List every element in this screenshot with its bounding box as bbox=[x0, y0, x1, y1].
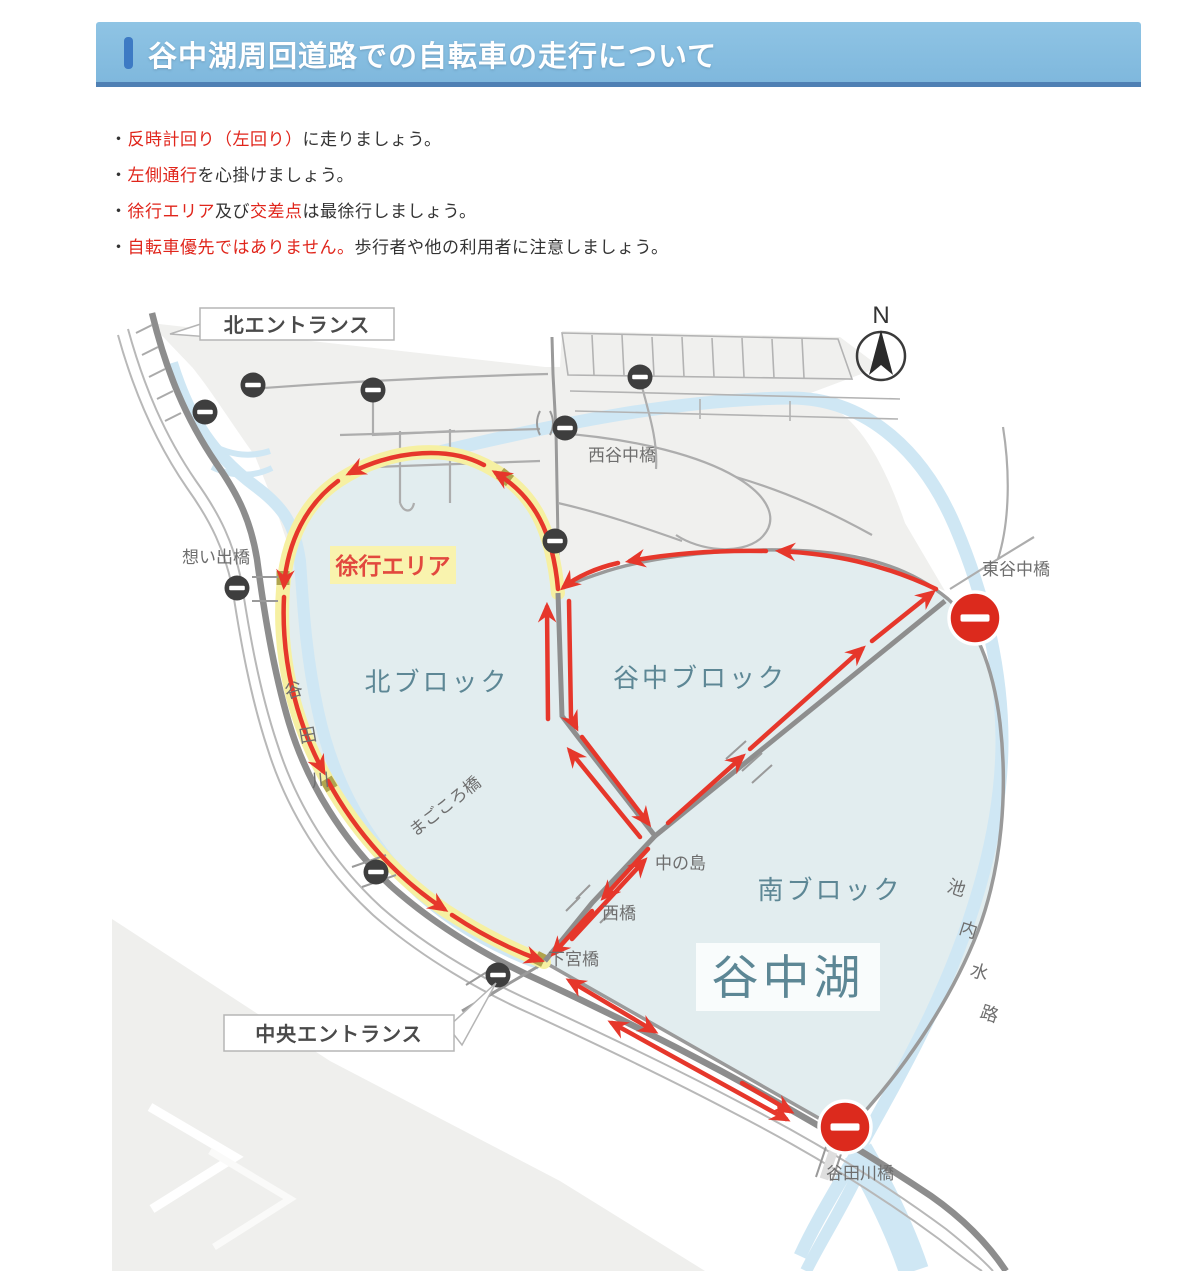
compass-needle bbox=[869, 330, 893, 375]
svg-text:路: 路 bbox=[978, 1002, 1001, 1027]
map-svg: N 北エントランス 中央エントランス 徐行エリア 谷中湖 北ブロック 谷中ブロッ… bbox=[0, 271, 1200, 1271]
bullet-mark: ・ bbox=[110, 238, 128, 257]
rule-highlight: 自転車優先ではありません。 bbox=[128, 238, 355, 257]
bullet-mark: ・ bbox=[110, 202, 128, 221]
slow-area-label: 徐行エリア bbox=[335, 553, 451, 579]
rule-text: 及び bbox=[215, 202, 250, 221]
rule-item: ・徐行エリア及び交差点は最徐行しましょう。 bbox=[110, 194, 668, 230]
section-header: 谷中湖周回道路での自転車の走行について bbox=[96, 22, 1141, 87]
no-entry-icon bbox=[628, 365, 653, 390]
shimomiya-bridge-label: 下宮橋 bbox=[548, 950, 599, 969]
no-entry-icon bbox=[225, 576, 250, 601]
rule-item: ・反時計回り（左回り）に走りましょう。 bbox=[110, 122, 668, 158]
yatagawa-bridge-label: 谷田川橋 bbox=[826, 1164, 894, 1183]
nishi-yanaka-bridge-label: 西谷中橋 bbox=[588, 446, 656, 465]
no-entry-icon bbox=[553, 416, 578, 441]
no-entry-icon bbox=[364, 860, 389, 885]
no-entry-icon bbox=[241, 373, 266, 398]
higashi-yanaka-bridge-label: 東谷中橋 bbox=[982, 560, 1050, 579]
compass-n-label: N bbox=[872, 302, 889, 329]
rules-list: ・反時計回り（左回り）に走りましょう。 ・左側通行を心掛けましょう。 ・徐行エリ… bbox=[110, 122, 668, 266]
svg-text:田: 田 bbox=[297, 724, 318, 747]
rule-highlight: 交差点 bbox=[250, 202, 303, 221]
bullet-mark: ・ bbox=[110, 130, 128, 149]
rule-highlight: 徐行エリア bbox=[128, 202, 216, 221]
north-block-label: 北ブロック bbox=[364, 667, 509, 697]
no-entry-sign-red bbox=[949, 592, 1001, 644]
rule-highlight: 反時計回り（左回り） bbox=[128, 130, 303, 149]
north-entrance-callout: 北エントランス bbox=[170, 308, 394, 340]
omoide-bridge-label: 想い出橋 bbox=[182, 548, 250, 567]
central-entrance-label: 中央エントランス bbox=[255, 1022, 423, 1046]
page-title: 谷中湖周回道路での自転車の走行について bbox=[148, 33, 717, 75]
no-entry-sign-red bbox=[819, 1101, 871, 1153]
south-block-label: 南ブロック bbox=[757, 875, 902, 905]
no-entry-icon bbox=[543, 529, 568, 554]
bullet-mark: ・ bbox=[110, 166, 128, 185]
rule-text: を心掛けましょう。 bbox=[198, 166, 354, 185]
no-entry-icon bbox=[486, 963, 511, 988]
rule-text: は最徐行しましょう。 bbox=[303, 202, 477, 221]
rule-highlight: 左側通行 bbox=[128, 166, 198, 185]
header-accent-bar bbox=[124, 37, 133, 69]
svg-text:水: 水 bbox=[968, 960, 991, 985]
svg-text:川: 川 bbox=[311, 769, 331, 790]
rule-item: ・左側通行を心掛けましょう。 bbox=[110, 158, 668, 194]
no-entry-icon bbox=[361, 378, 386, 403]
yanaka-block-label: 谷中ブロック bbox=[613, 663, 787, 693]
rule-item: ・自転車優先ではありません。歩行者や他の利用者に注意しましょう。 bbox=[110, 230, 668, 266]
north-entrance-label: 北エントランス bbox=[224, 314, 371, 337]
nakanoshima-label: 中の島 bbox=[655, 854, 706, 873]
no-entry-icon bbox=[193, 400, 218, 425]
central-entrance-callout: 中央エントランス bbox=[224, 983, 496, 1051]
nishi-bridge-label: 西橋 bbox=[602, 904, 636, 923]
rule-text: 歩行者や他の利用者に注意しましょう。 bbox=[355, 238, 669, 257]
lake-map: N 北エントランス 中央エントランス 徐行エリア 谷中湖 北ブロック 谷中ブロッ… bbox=[0, 271, 1200, 1271]
lake-labelbox: 谷中湖 bbox=[696, 943, 880, 1011]
slow-area-labelbox: 徐行エリア bbox=[330, 546, 456, 584]
rule-text: に走りましょう。 bbox=[303, 130, 442, 149]
lake-label: 谷中湖 bbox=[712, 951, 865, 1004]
